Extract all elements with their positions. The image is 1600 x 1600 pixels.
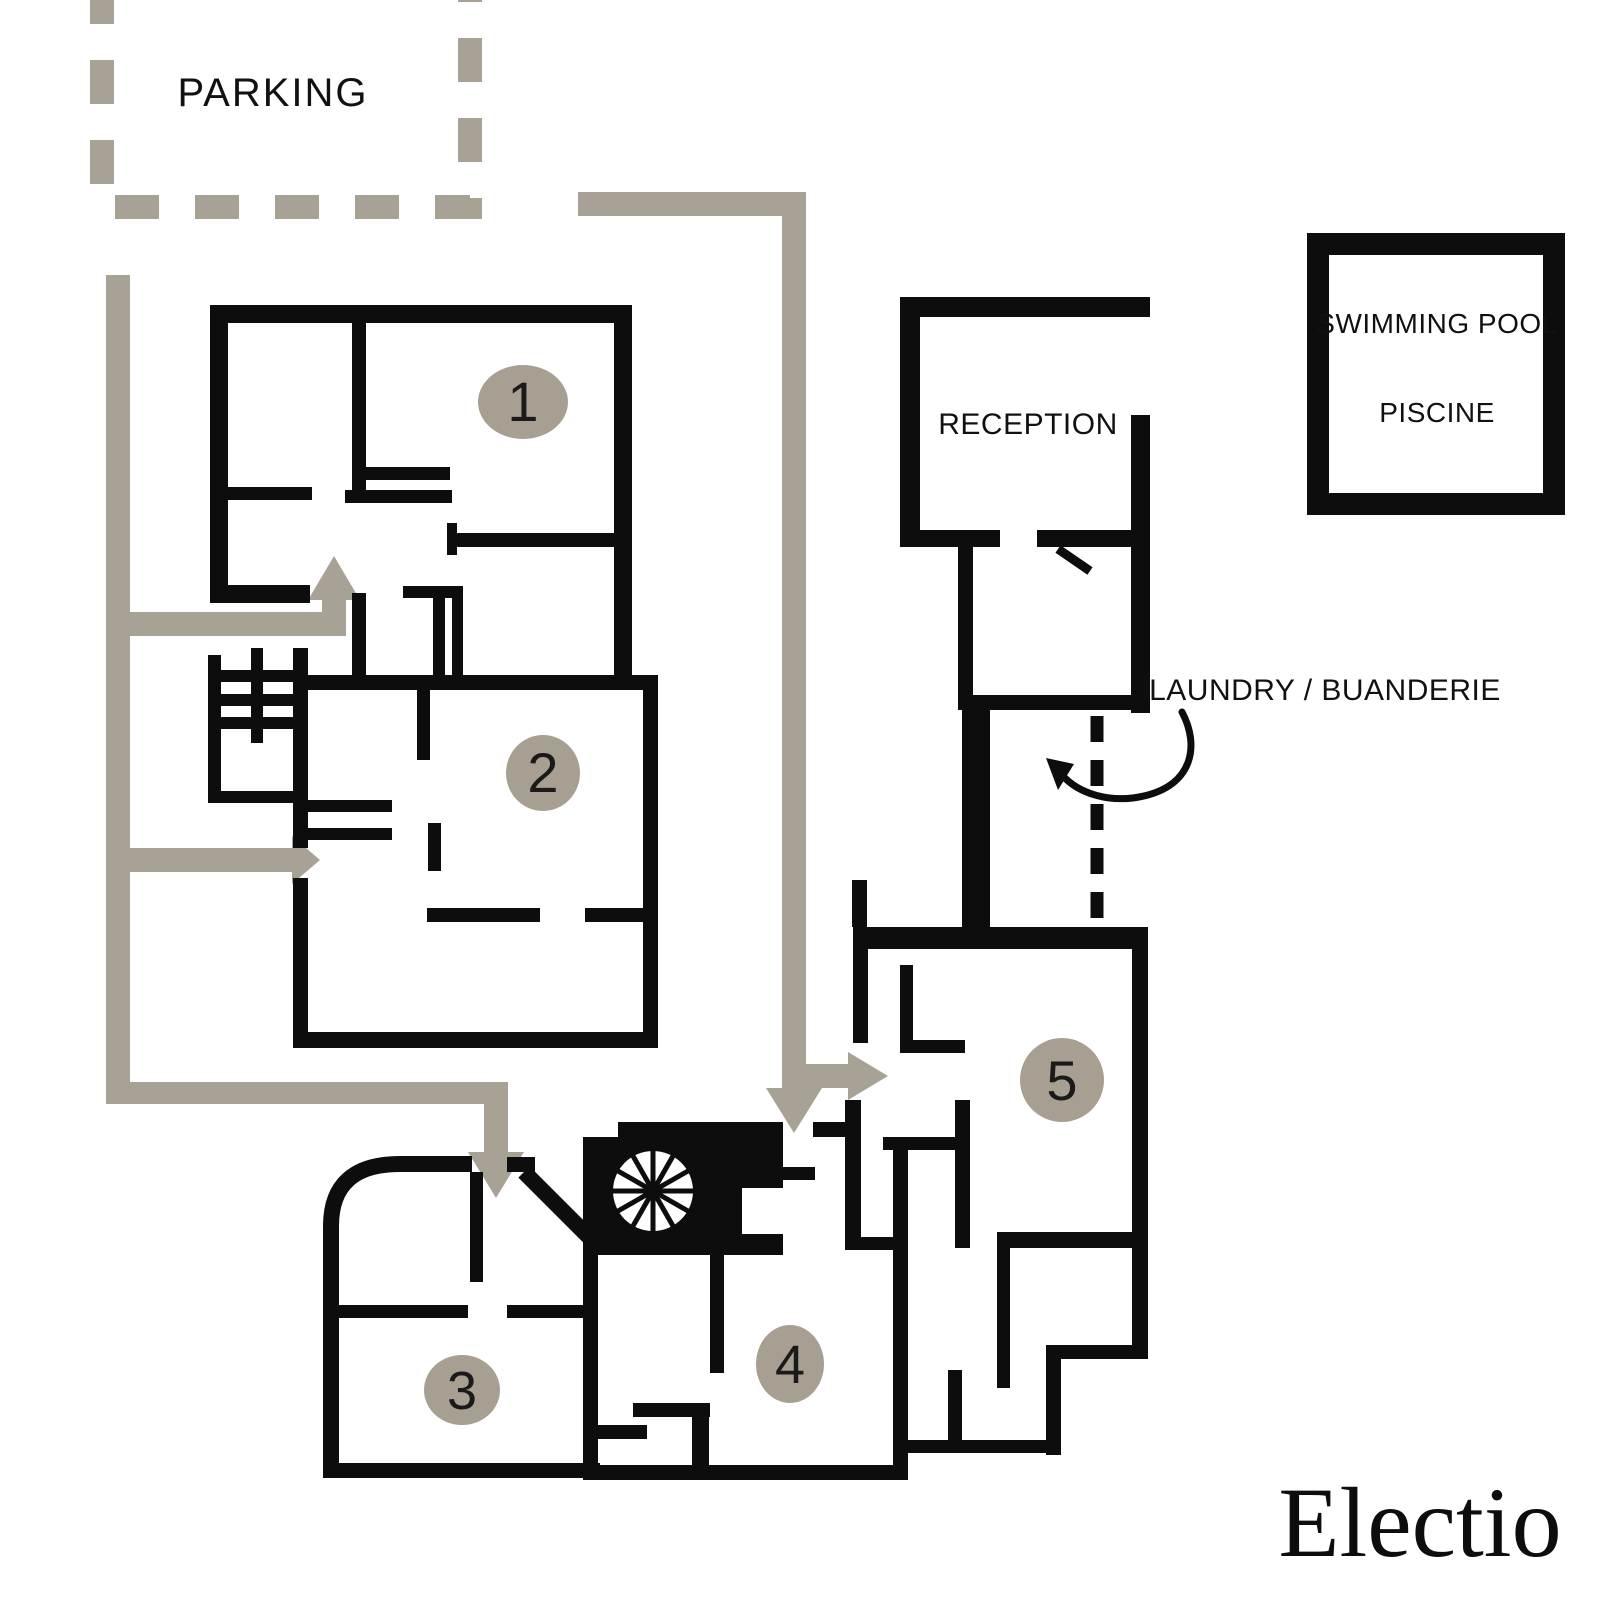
route-to-buildings-1-2-3 <box>106 275 524 1198</box>
parking-label: PARKING <box>177 71 368 115</box>
walkway-wall <box>962 710 990 928</box>
badge-building-1: 1 <box>478 365 568 439</box>
laundry-annotation: LAUNDRY / BUANDERIE <box>1046 674 1501 925</box>
route-a-branch-building2 <box>128 848 292 872</box>
route-a-bottom-horizontal <box>106 1082 508 1104</box>
badge-building-2: 2 <box>506 735 580 811</box>
swimming-pool-label-en: SWIMMING POOL <box>1316 308 1557 339</box>
spiral-staircase-icon <box>613 1151 693 1231</box>
swimming-pool-label-fr: PISCINE <box>1379 397 1495 428</box>
route-b-vertical <box>782 192 806 1090</box>
floor-plan-canvas: PARKING <box>0 0 1600 1600</box>
badge-5-number: 5 <box>1046 1049 1077 1112</box>
badge-building-4: 4 <box>756 1325 824 1403</box>
badge-building-3: 3 <box>424 1355 500 1425</box>
route-a-branch-building1 <box>128 612 346 636</box>
arrow-right-building5-icon <box>848 1052 888 1100</box>
badge-4-number: 4 <box>775 1335 805 1395</box>
route-a-arrow1-stem <box>322 598 346 636</box>
reception-walls: RECEPTION <box>900 297 1150 928</box>
badge-1-number: 1 <box>507 370 538 433</box>
route-b-top-horizontal <box>578 192 806 216</box>
parking-area: PARKING <box>102 0 470 207</box>
building-5-walls <box>845 880 1148 1455</box>
reception-label: RECEPTION <box>938 408 1118 441</box>
route-a-arrow3-stem <box>484 1104 508 1154</box>
badge-2-number: 2 <box>527 741 558 804</box>
door-leaf <box>1058 549 1090 571</box>
laundry-curved-arrow <box>1062 712 1191 799</box>
badge-3-number: 3 <box>447 1361 477 1421</box>
swimming-pool-outline <box>1318 244 1554 504</box>
door-recess <box>742 1188 800 1234</box>
route-a-vertical <box>106 275 130 1103</box>
building-3-walls <box>323 1157 600 1478</box>
brand-logo: Electio <box>1278 1467 1561 1578</box>
route-b-branch-building5 <box>806 1064 848 1088</box>
laundry-label: LAUNDRY / BUANDERIE <box>1149 674 1501 707</box>
badge-building-5: 5 <box>1020 1038 1104 1122</box>
swimming-pool: SWIMMING POOL PISCINE <box>1316 244 1557 504</box>
building-2-walls <box>293 648 658 1048</box>
site-floor-plan: PARKING <box>0 0 1600 1600</box>
